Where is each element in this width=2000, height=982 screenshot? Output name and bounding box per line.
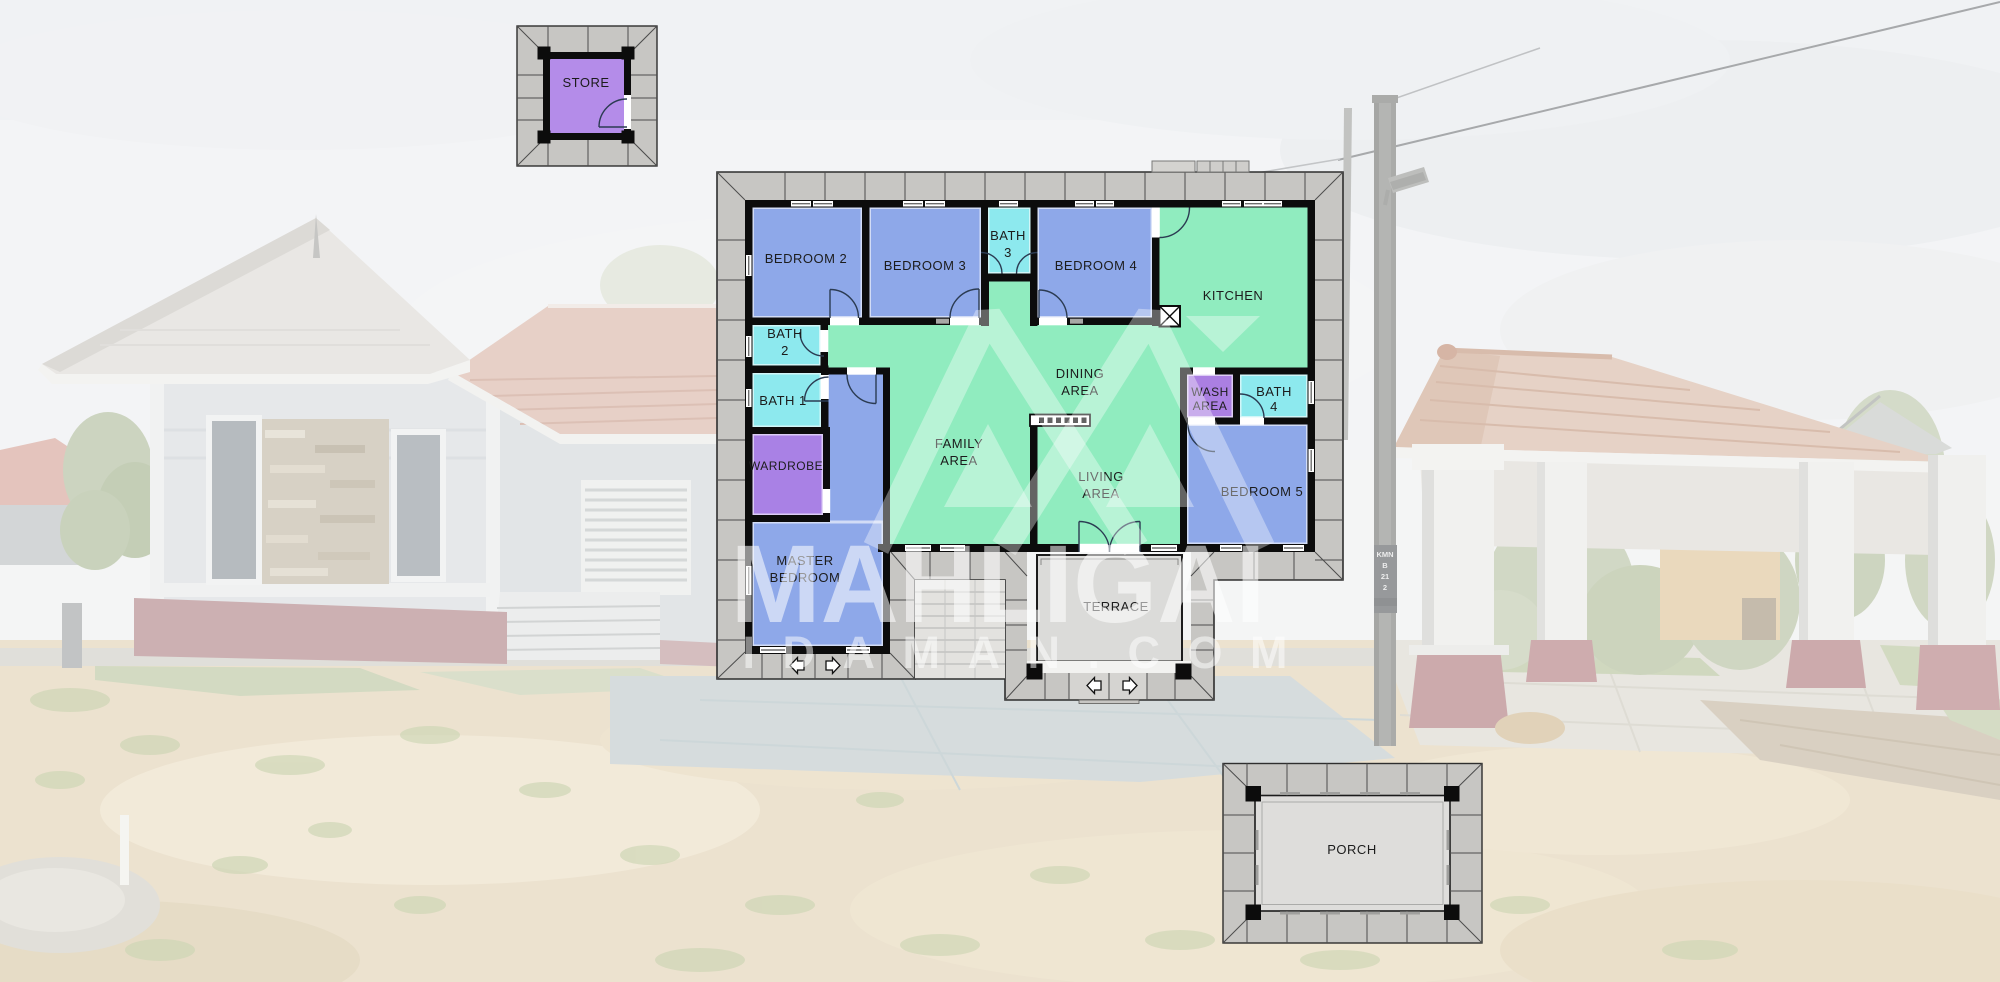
- svg-text:STORE: STORE: [562, 75, 609, 90]
- svg-text:BEDROOM 4: BEDROOM 4: [1055, 258, 1138, 273]
- svg-text:21: 21: [1381, 572, 1389, 581]
- svg-text:BATH: BATH: [1256, 384, 1292, 399]
- svg-text:KITCHEN: KITCHEN: [1203, 288, 1264, 303]
- svg-text:4: 4: [1270, 399, 1278, 414]
- svg-text:2: 2: [1383, 583, 1387, 592]
- svg-text:3: 3: [1004, 245, 1012, 260]
- svg-text:BATH 1: BATH 1: [759, 393, 807, 408]
- svg-text:BATH: BATH: [767, 326, 803, 341]
- svg-text:2: 2: [781, 343, 789, 358]
- svg-text:WARDROBE: WARDROBE: [749, 459, 823, 473]
- svg-text:BEDROOM 2: BEDROOM 2: [765, 251, 848, 266]
- svg-text:PORCH: PORCH: [1327, 842, 1376, 857]
- svg-text:BEDROOM 3: BEDROOM 3: [884, 258, 967, 273]
- svg-text:B: B: [1382, 561, 1388, 570]
- svg-text:BATH: BATH: [990, 228, 1026, 243]
- svg-text:KMN: KMN: [1376, 550, 1393, 559]
